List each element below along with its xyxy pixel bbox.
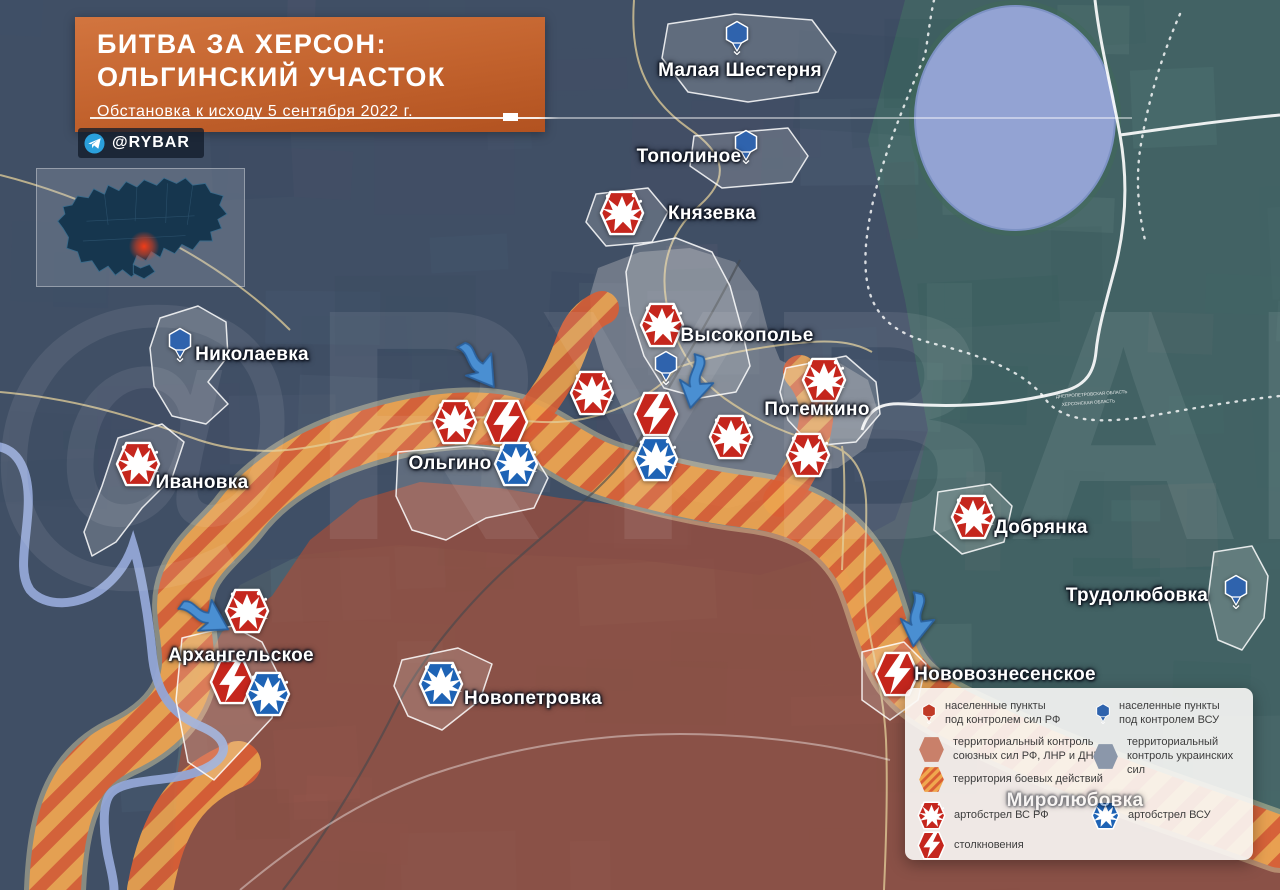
town-pin-vsu [167,327,193,362]
legend-item-towns-rf: населенные пунктыпод контролем сил РФ [921,700,1060,728]
town-label: Трудолюбовка [1066,585,1208,607]
attack-arrow-icon [438,326,519,407]
town-label: Нововознесенское [914,664,1096,686]
artillery-rf-marker [599,190,645,236]
clash-icon [917,831,946,860]
legend-item-combat-zone: территория боевых действий [918,766,1103,793]
channel-handle: @RYBAR [112,134,190,152]
title-underline [90,117,1132,119]
artillery-rf-marker [115,441,161,487]
town-label: Добрянка [994,517,1088,539]
town-label: Потемкино [764,399,869,421]
hex-combat-icon [918,766,945,793]
artillery-rf-marker [432,399,478,445]
town-pin-vsu [1223,574,1249,609]
hex-ua-icon [1092,743,1119,770]
clash-marker [483,399,529,445]
legend-item-towns-vsu: населенные пунктыпод контролем ВСУ [1095,700,1220,728]
legend-item-territory-ua: территориальныйконтроль украинских сил [1092,736,1253,778]
artillery-rf-marker [224,588,270,634]
kherson-highlight [129,231,160,262]
map-canvas: ДНЕПРОПЕТРОВСКАЯ ОБЛАСТЬ ХЕРСОНСКАЯ ОБЛА… [0,0,1280,890]
clash-marker [633,391,679,437]
hex-rf-icon [918,736,945,763]
artillery-rf-marker [801,357,847,403]
artillery-rf-marker [639,302,685,348]
town-label: Высокополье [680,325,813,347]
artillery-rf-marker [950,494,996,540]
town-pin-vsu [724,20,750,55]
ukraine-map-icon [37,169,244,286]
town-label: Новопетровка [464,688,602,710]
title-underline-marker [503,113,518,121]
pin-vsu-icon [1095,703,1111,724]
artillery-rf-marker [785,432,831,478]
map-title-line1: БИТВА ЗА ХЕРСОН: [97,28,525,61]
artillery-vsu-marker [245,671,291,717]
rybar-channel-badge: @RYBAR [78,128,204,158]
town-label: Тополиное [637,146,742,168]
artillery-rf-icon [917,801,946,830]
ukraine-locator-inset [36,168,245,287]
town-label: Малая Шестерня [658,60,822,82]
legend-panel: населенные пунктыпод контролем сил РФ те… [905,688,1253,860]
town-label: Николаевка [195,344,309,366]
telegram-icon [84,133,105,154]
legend-item-territory-rf: территориальный контрольсоюзных сил РФ, … [918,736,1101,764]
artillery-vsu-marker [418,661,464,707]
artillery-rf-marker [569,370,615,416]
town-label: Ольгино [408,453,491,475]
artillery-vsu-marker [493,441,539,487]
title-panel: БИТВА ЗА ХЕРСОН: ОЛЬГИНСКИЙ УЧАСТОК Обст… [75,17,545,132]
artillery-vsu-marker [633,436,679,482]
town-label: Архангельское [168,645,314,667]
legend-item-clashes: столкновения [917,831,1024,860]
town-label: Князевка [668,203,756,225]
town-label: Миролюбовка [1007,790,1144,812]
map-title-line2: ОЛЬГИНСКИЙ УЧАСТОК [97,61,525,94]
pin-rf-icon [921,703,937,724]
attack-arrow-icon [883,587,949,653]
town-label: Ивановка [156,472,249,494]
artillery-rf-marker [708,414,754,460]
